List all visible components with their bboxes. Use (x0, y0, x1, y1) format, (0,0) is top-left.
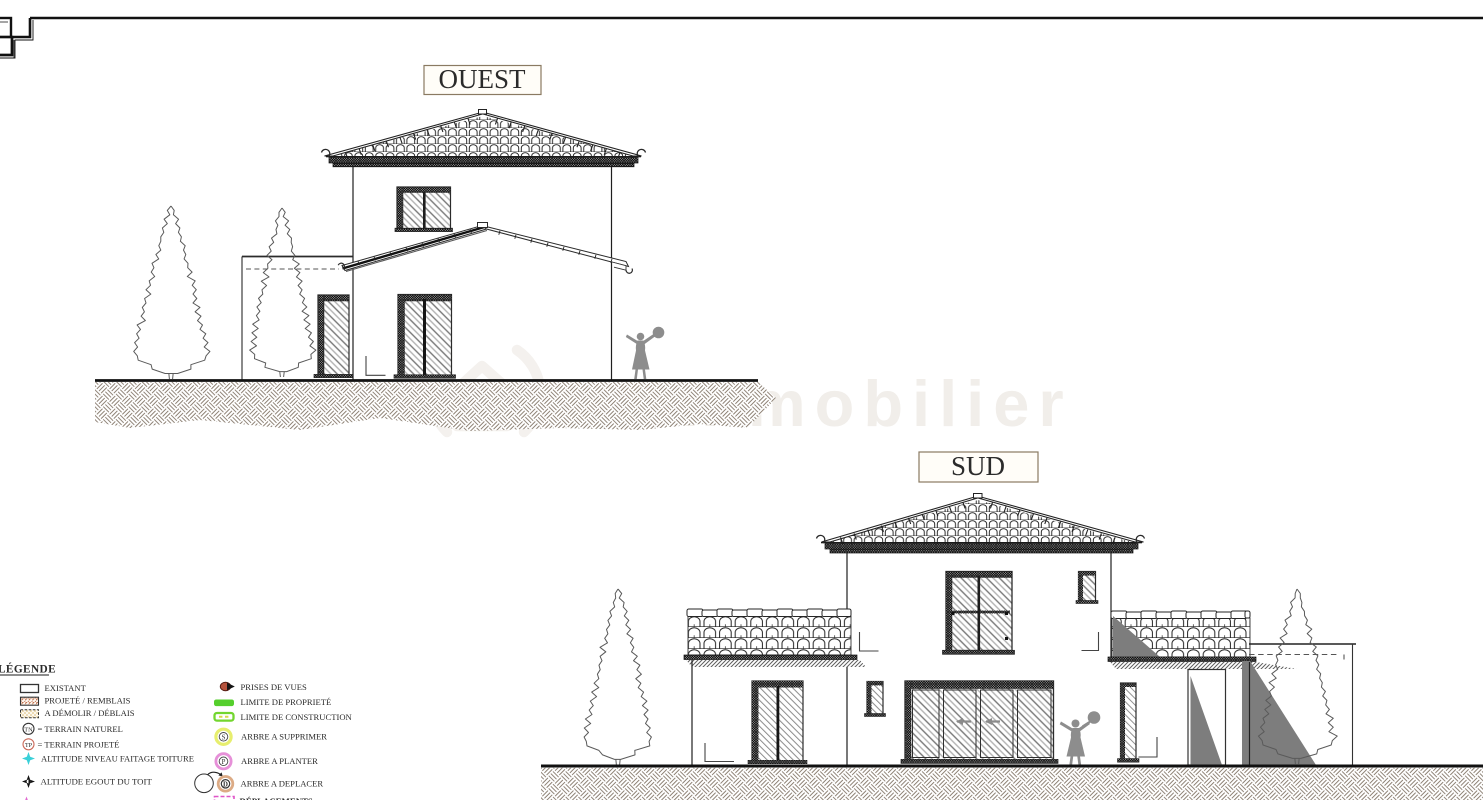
svg-text:ARBRE A DEPLACER: ARBRE A DEPLACER (241, 779, 324, 789)
svg-text:OUEST: OUEST (439, 64, 527, 94)
svg-text:ARBRE A PLANTER: ARBRE A PLANTER (241, 756, 318, 766)
svg-text:ALTITUDE NIVEAU FAITAGE TOITUR: ALTITUDE NIVEAU FAITAGE TOITURE (41, 753, 194, 763)
svg-text:PROJETÉ / REMBLAIS: PROJETÉ / REMBLAIS (45, 696, 131, 706)
svg-text:TP: TP (25, 742, 33, 749)
svg-text:LIMITE DE CONSTRUCTION: LIMITE DE CONSTRUCTION (241, 712, 353, 722)
svg-text:= TERRAIN NATUREL: = TERRAIN NATUREL (38, 724, 123, 734)
svg-text:P: P (222, 759, 226, 766)
svg-text:ARBRE A SUPPRIMER: ARBRE A SUPPRIMER (241, 731, 327, 741)
svg-text:DÉPLACEMENTS: DÉPLACEMENTS (240, 796, 313, 800)
svg-text:SUD: SUD (951, 451, 1005, 481)
svg-text:LIMITE DE PROPRIETÉ: LIMITE DE PROPRIETÉ (241, 697, 332, 707)
svg-text:LÉGENDE: LÉGENDE (0, 664, 56, 676)
svg-text:EXISTANT: EXISTANT (45, 683, 87, 693)
svg-text:A DÉMOLIR / DÉBLAIS: A DÉMOLIR / DÉBLAIS (45, 708, 135, 718)
svg-text:ALTITUDE EGOUT DU TOIT: ALTITUDE EGOUT DU TOIT (41, 776, 153, 786)
svg-text:D: D (223, 782, 228, 789)
svg-text:PRISES DE VUES: PRISES DE VUES (241, 682, 307, 692)
svg-text:S: S (222, 734, 226, 741)
svg-text:TN: TN (24, 726, 33, 733)
svg-text:= TERRAIN PROJETÉ: = TERRAIN PROJETÉ (38, 739, 120, 749)
